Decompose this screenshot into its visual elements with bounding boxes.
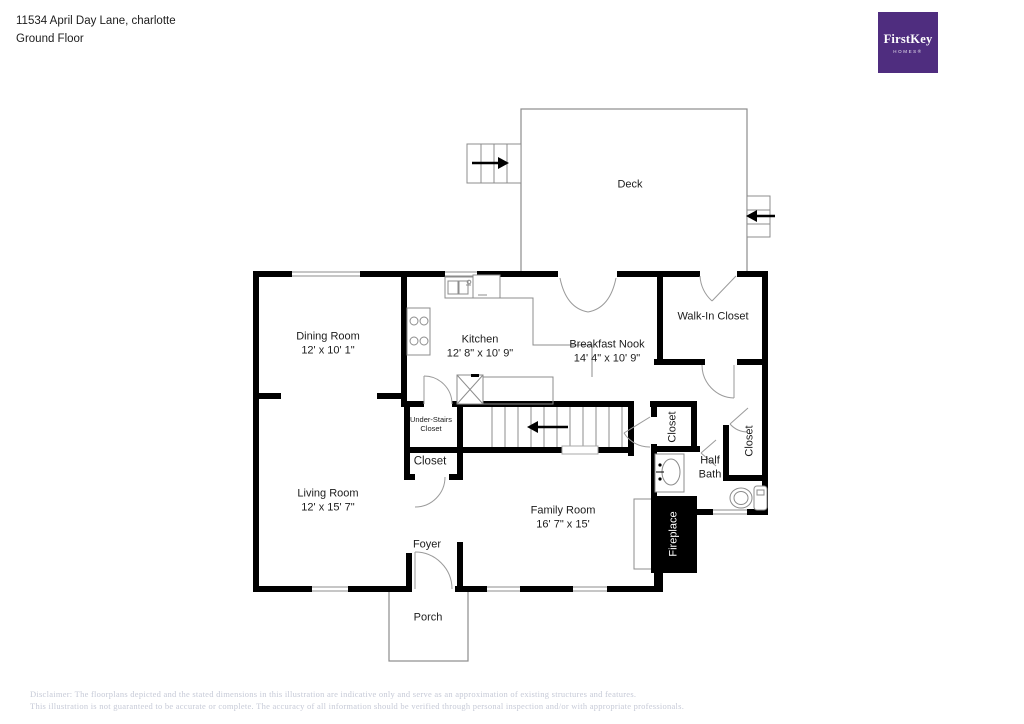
- door-swing: [702, 365, 734, 398]
- door-swing: [624, 417, 650, 447]
- staircase: [492, 407, 622, 454]
- disclaimer-line1: Disclaimer: The floorplans depicted and …: [30, 689, 636, 699]
- bathroom-sink-icon: [655, 454, 684, 492]
- room-dims: 12' x 15' 7": [297, 501, 358, 515]
- window-icon: [487, 586, 520, 592]
- deck-stairs-right: [746, 196, 775, 237]
- room-label-understairs-closet: Under-Stairs Closet: [410, 415, 452, 433]
- room-label-living: Living Room 12' x 15' 7": [297, 488, 358, 515]
- door-swing: [424, 376, 452, 404]
- room-label-breakfast-nook: Breakfast Nook 14' 4" x 10' 9": [569, 339, 644, 366]
- porch-outline: [389, 591, 468, 661]
- room-label-porch: Porch: [414, 611, 443, 625]
- fireplace-block: [634, 496, 697, 573]
- door-swing: [415, 552, 452, 589]
- room-label-deck: Deck: [617, 178, 642, 192]
- room-label-dining: Dining Room 12' x 10' 1": [296, 331, 360, 358]
- room-label-fireplace: Fireplace: [667, 511, 681, 556]
- dishwasher-icon: [473, 275, 500, 298]
- room-label-closet-right: Closet: [743, 425, 757, 456]
- room-dims: 14' 4" x 10' 9": [569, 352, 644, 366]
- double-door-swing: [560, 278, 616, 312]
- kitchen-sink-icon: [445, 277, 473, 298]
- door-swing: [700, 276, 736, 301]
- toilet-icon: [730, 486, 767, 510]
- room-label-half-bath: Half Bath: [699, 455, 722, 482]
- room-label-foyer: Foyer: [413, 538, 441, 552]
- kitchen-island-counter: [483, 377, 553, 404]
- refrigerator-icon: [457, 374, 483, 404]
- room-label-closet-hall: Closet: [414, 455, 447, 469]
- room-dims: 16' 7" x 15': [531, 518, 596, 532]
- window-icon: [292, 271, 360, 277]
- door-swing: [415, 477, 445, 507]
- floorplan-graphic: [0, 0, 1024, 724]
- window-icon: [573, 586, 607, 592]
- deck-stairs-left: [467, 144, 521, 183]
- floorplan-page: 11534 April Day Lane, charlotte Ground F…: [0, 0, 1024, 724]
- disclaimer-line2: This illustration is not guaranteed to b…: [30, 701, 684, 711]
- window-icon: [445, 271, 477, 277]
- room-label-family: Family Room 16' 7" x 15': [531, 505, 596, 532]
- room-dims: 12' x 10' 1": [296, 344, 360, 358]
- window-icon: [713, 509, 747, 515]
- stove-icon: [407, 308, 430, 355]
- room-label-closet-left: Closet: [666, 411, 680, 442]
- room-dims: 12' 8" x 10' 9": [447, 347, 513, 361]
- window-icon: [312, 586, 348, 592]
- room-label-walkin-closet: Walk-In Closet: [677, 310, 748, 324]
- stairs-arrow-left-icon: [527, 421, 568, 433]
- room-label-kitchen: Kitchen 12' 8" x 10' 9": [447, 334, 513, 361]
